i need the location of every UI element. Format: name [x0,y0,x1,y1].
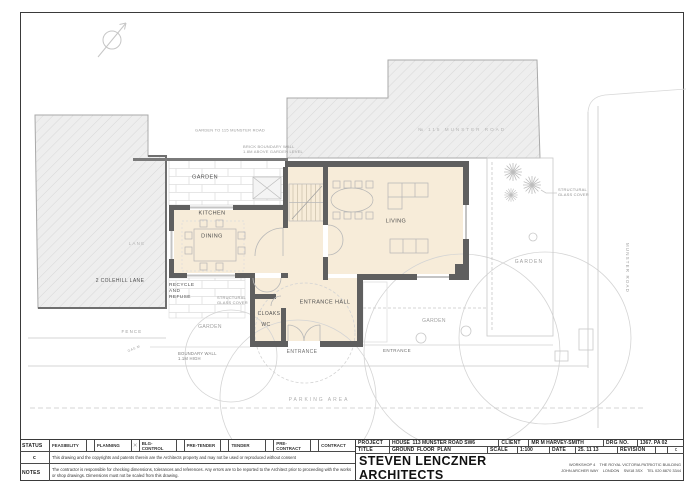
label-garden-lower-mid: GARDEN [422,318,446,325]
status-checkbox-blg-control [177,440,185,451]
drawing-sheet: GARDEN KITCHEN DINING LIVING ENTRANCE HA… [0,0,700,495]
status-item-feasibility: FEASIBILITY [50,440,87,451]
label-structural-glass-right: STRUCTURAL GLASS COVER [558,187,589,197]
status-checkbox-tender [266,440,274,451]
label-garden-to-115: GARDEN TO 115 MUNSTER ROAD [195,127,265,132]
copyright-row: c This drawing and the copyrights and pa… [20,452,355,464]
revision-letter-left: c [20,452,50,463]
drawing-title-value: GROUND FLOOR PLAN [390,447,488,453]
label-boundary-wall: BOUNDARY WALL 1.1M HIGH [178,351,217,362]
project-label: PROJECT [356,440,390,446]
client-value: MR M HARVEY-SMITH [529,440,604,446]
date-value: 25. 11 13 [576,447,618,453]
status-item-blg-control: BLG-CONTROL [140,440,177,451]
revision-label: REVISION [618,447,656,453]
client-label: CLIENT [499,440,529,446]
status-checkbox-pre-contract [311,440,319,451]
label-garden-top: GARDEN [192,174,218,181]
project-row: PROJECT HOUSE 113 MUNSTER ROAD SW6 CLIEN… [356,440,684,447]
revision-spacer [656,447,668,453]
label-parking-area: PARKING AREA [289,397,350,404]
plan-graphics [20,12,686,440]
label-munster-road: MUNSTER ROAD [624,243,630,293]
firm-address: WORKSHOP 4 THE ROYAL VICTORIA PATRIOTIC … [523,454,684,482]
drg-no-value: 1367. PA 02 [638,440,684,446]
status-checkbox-pre-tender [221,440,229,451]
title-block: STATUS FEASIBILITY PLANNING ✕ BLG-CONTRO… [20,439,684,481]
status-row: STATUS FEASIBILITY PLANNING ✕ BLG-CONTRO… [20,440,355,452]
title-block-left: STATUS FEASIBILITY PLANNING ✕ BLG-CONTRO… [20,440,356,481]
label-structural-glass-left: STRUCTURAL GLASS COVER [217,295,248,305]
tree-icon [504,163,522,181]
label-kitchen: KITCHEN [199,210,226,217]
notes-row: NOTES The contractor is responsible for … [20,464,355,481]
label-brick-wall: BRICK BOUNDARY WALL 1.8M ABOVE GARDEN LE… [243,144,303,154]
label-fence: FENCE [122,329,143,335]
staircase [289,184,325,221]
status-item-pre-contract: PRE-CONTRACT [274,440,311,451]
status-checkbox-planning: ✕ [132,440,140,451]
label-entrance-right: ENTRANCE [383,348,411,354]
drawing-title-label: TITLE [356,447,390,453]
revision-value: c [668,447,684,453]
label-dining: DINING [201,233,223,240]
firm-name: STEVEN LENCZNER ARCHITECTS [356,454,523,482]
status-item-pre-tender: PRE-TENDER [185,440,222,451]
label-entrance-left: ENTRANCE [287,349,318,356]
label-lane: LANE [129,241,146,247]
status-label: STATUS [20,440,50,451]
label-cloaks: CLOAKS [258,311,281,318]
label-living: LIVING [386,218,406,225]
notes-label: NOTES [20,464,50,481]
label-wc: WC [261,322,270,329]
notes-text: The contractor is responsible for checki… [50,464,355,481]
label-no-115: № 115 MUNSTER ROAD [418,127,506,133]
drg-no-label: DRG NO. [604,440,638,446]
label-garden-lower-left: GARDEN [198,324,222,331]
status-checkbox-feasibility [87,440,95,451]
rooflight [253,177,281,199]
tree-icon [504,188,518,202]
title-row: TITLE GROUND FLOOR PLAN SCALE 1:100 DATE… [356,447,684,454]
label-entrance-hall: ENTRANCE HALL [300,299,351,306]
status-item-planning: PLANNING [95,440,132,451]
label-colehill: 2 COLEHILL LANE [96,278,145,285]
building-115-munster-road [287,60,540,158]
scale-value: 1:100 [518,447,550,453]
status-item-contract: CONTRACT [319,440,355,451]
project-value: HOUSE 113 MUNSTER ROAD SW6 [390,440,499,446]
date-label: DATE [550,447,576,453]
firm-row: STEVEN LENCZNER ARCHITECTS WORKSHOP 4 TH… [356,454,684,482]
firm-address-line2: JOHN ARCHER WAY LONDON SW18 3SX TEL 020 … [523,468,681,474]
label-garden-right: GARDEN [515,259,544,266]
north-arrow-icon [98,23,126,57]
tree-icon [523,176,541,194]
copyright-text: This drawing and the copyrights and pate… [50,452,355,463]
title-block-right: PROJECT HOUSE 113 MUNSTER ROAD SW6 CLIEN… [356,440,684,481]
scale-label: SCALE [488,447,518,453]
status-item-tender: TENDER [229,440,266,451]
label-recycle: RECYCLE AND REFUSE [169,283,194,302]
